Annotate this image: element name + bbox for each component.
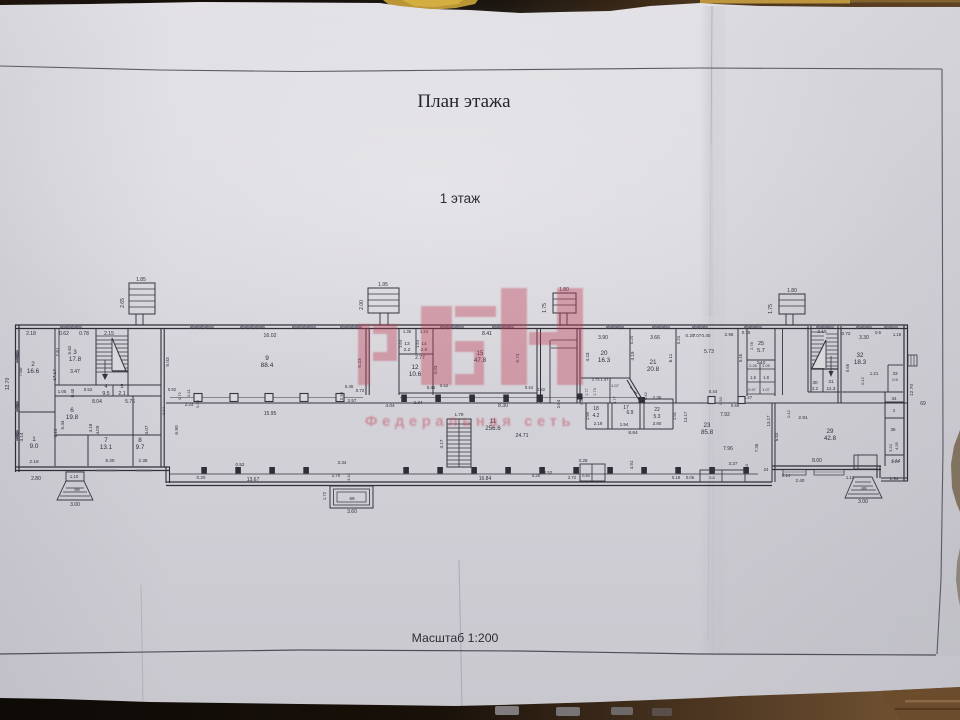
svg-text:7.60: 7.60 (18, 367, 23, 376)
svg-text:0.12: 0.12 (786, 409, 791, 418)
svg-text:7.96: 7.96 (723, 446, 733, 452)
svg-text:Федеральная сеть: Федеральная сеть (365, 414, 575, 430)
svg-text:1.10: 1.10 (70, 474, 79, 479)
svg-text:0.52: 0.52 (84, 387, 93, 392)
svg-text:13.17: 13.17 (683, 411, 688, 423)
svg-text:2.73 1.97: 2.73 1.97 (592, 377, 609, 382)
svg-text:69: 69 (74, 487, 80, 493)
svg-text:1.21: 1.21 (870, 371, 879, 376)
svg-text:3.34: 3.34 (338, 460, 347, 465)
svg-text:1.47: 1.47 (744, 395, 753, 400)
svg-text:5.03: 5.03 (165, 357, 171, 367)
svg-text:2.61: 2.61 (55, 347, 60, 356)
svg-text:5.3: 5.3 (654, 414, 661, 420)
svg-text:0.20: 0.20 (532, 473, 541, 478)
svg-text:9: 9 (265, 355, 269, 362)
svg-text:4: 4 (105, 384, 108, 390)
svg-text:1.85: 1.85 (136, 277, 146, 283)
svg-text:5.7: 5.7 (757, 348, 765, 354)
svg-text:3.20: 3.20 (888, 443, 893, 452)
svg-text:3.90: 3.90 (598, 335, 608, 341)
svg-text:21: 21 (649, 359, 657, 366)
svg-text:1.75: 1.75 (542, 303, 548, 313)
svg-text:5: 5 (121, 384, 124, 390)
svg-text:0.06: 0.06 (686, 475, 695, 480)
svg-text:1.73: 1.73 (593, 388, 597, 395)
svg-text:0.63: 0.63 (744, 463, 749, 472)
svg-text:0.62: 0.62 (59, 331, 69, 337)
svg-text:24: 24 (764, 467, 769, 472)
svg-text:1.94: 1.94 (890, 476, 899, 481)
svg-text:0.72: 0.72 (842, 331, 851, 336)
svg-text:5.66: 5.66 (845, 363, 850, 372)
svg-text:13: 13 (404, 341, 410, 347)
svg-text:1.91: 1.91 (672, 411, 677, 420)
svg-text:0.40: 0.40 (702, 333, 711, 338)
svg-text:1.90: 1.90 (585, 411, 590, 420)
svg-text:0.24: 0.24 (629, 335, 634, 344)
svg-text:2.70: 2.70 (332, 473, 341, 478)
svg-text:20.8: 20.8 (647, 366, 660, 373)
svg-text:6.90: 6.90 (174, 425, 180, 435)
svg-text:0.82: 0.82 (537, 387, 546, 392)
svg-text:3.41: 3.41 (346, 472, 351, 481)
svg-text:10.6: 10.6 (409, 371, 422, 378)
svg-text:5.73: 5.73 (704, 349, 714, 355)
svg-text:3.27: 3.27 (729, 461, 738, 466)
svg-text:2.91: 2.91 (798, 415, 808, 421)
svg-text:1.07: 1.07 (611, 383, 620, 388)
svg-text:18.3: 18.3 (854, 359, 867, 366)
svg-text:17.17: 17.17 (52, 369, 57, 381)
svg-text:2.15: 2.15 (104, 331, 114, 337)
svg-text:18: 18 (593, 406, 599, 412)
svg-text:16.6: 16.6 (27, 368, 40, 375)
svg-text:22: 22 (654, 407, 660, 413)
svg-text:1.05: 1.05 (58, 389, 67, 394)
svg-text:0.45: 0.45 (427, 385, 436, 390)
svg-text:8: 8 (138, 437, 142, 444)
svg-text:0.30: 0.30 (195, 399, 200, 408)
svg-text:1.75: 1.75 (768, 304, 774, 314)
svg-text:35: 35 (890, 427, 896, 432)
svg-text:7.92: 7.92 (720, 412, 730, 418)
svg-text:34: 34 (891, 396, 897, 401)
svg-text:4.09: 4.09 (95, 425, 100, 434)
svg-text:3.60: 3.60 (347, 509, 357, 515)
svg-text:0.97: 0.97 (748, 388, 755, 392)
svg-text:1.16: 1.16 (893, 332, 902, 337)
svg-text:2.80: 2.80 (653, 421, 662, 426)
svg-text:3.77: 3.77 (612, 395, 617, 404)
svg-text:2.38: 2.38 (139, 458, 148, 463)
svg-text:8.30: 8.30 (498, 403, 508, 409)
svg-text:30: 30 (812, 380, 818, 385)
svg-text:2.04: 2.04 (556, 399, 561, 408)
svg-text:7.07: 7.07 (693, 333, 702, 338)
svg-text:0.40: 0.40 (70, 388, 75, 397)
svg-text:1.77: 1.77 (585, 388, 589, 395)
svg-text:16.02: 16.02 (264, 333, 277, 339)
svg-text:3.30: 3.30 (859, 335, 869, 341)
svg-text:6.11: 6.11 (668, 353, 673, 362)
svg-text:2.00: 2.00 (359, 300, 365, 310)
svg-text:4.17: 4.17 (439, 439, 444, 448)
svg-text:4.07: 4.07 (144, 425, 149, 434)
svg-text:2.40: 2.40 (796, 478, 805, 483)
svg-text:2.19: 2.19 (594, 421, 603, 426)
svg-text:3.28: 3.28 (579, 458, 588, 463)
svg-text:69: 69 (861, 486, 867, 491)
svg-text:1.64: 1.64 (398, 339, 403, 348)
svg-text:2.57: 2.57 (348, 398, 357, 403)
svg-text:0.92: 0.92 (168, 387, 177, 392)
svg-text:9.0: 9.0 (30, 443, 39, 450)
svg-text:17.8: 17.8 (69, 356, 82, 363)
svg-text:0.84: 0.84 (582, 474, 589, 478)
svg-text:0.20: 0.20 (197, 475, 206, 480)
svg-text:2.18: 2.18 (26, 331, 36, 337)
svg-text:6: 6 (70, 407, 74, 414)
svg-text:2.2: 2.2 (812, 386, 818, 391)
svg-text:33: 33 (892, 371, 898, 376)
svg-text:25: 25 (758, 341, 764, 347)
svg-text:0.5: 0.5 (892, 377, 898, 382)
svg-text:15.95: 15.95 (264, 411, 277, 417)
svg-text:Масштаб 1:200: Масштаб 1:200 (412, 631, 499, 645)
svg-text:1 этаж: 1 этаж (440, 191, 480, 206)
svg-text:2.09: 2.09 (762, 364, 769, 368)
svg-text:13.17: 13.17 (766, 415, 771, 427)
svg-text:0.57: 0.57 (579, 396, 584, 405)
svg-text:1.6: 1.6 (750, 375, 756, 380)
svg-text:8.04: 8.04 (92, 399, 102, 405)
svg-text:5.20: 5.20 (106, 458, 115, 463)
svg-text:0.78: 0.78 (79, 331, 89, 337)
svg-text:85.8: 85.8 (701, 429, 714, 436)
svg-text:2.72: 2.72 (568, 475, 577, 480)
svg-text:5.46: 5.46 (738, 353, 743, 362)
svg-text:0.6: 0.6 (875, 330, 882, 335)
svg-text:0.42: 0.42 (643, 391, 648, 400)
svg-text:0.46: 0.46 (731, 403, 740, 408)
svg-text:2.65: 2.65 (120, 298, 126, 308)
svg-text:69: 69 (349, 496, 355, 501)
svg-text:29: 29 (827, 428, 834, 435)
svg-text:16.3: 16.3 (598, 357, 611, 364)
svg-text:3.66: 3.66 (650, 335, 660, 341)
svg-text:1.14: 1.14 (892, 458, 901, 463)
svg-text:1.8: 1.8 (763, 375, 769, 380)
svg-text:0.12: 0.12 (860, 376, 865, 385)
svg-text:4.14: 4.14 (19, 432, 24, 441)
svg-text:9.7: 9.7 (136, 444, 145, 451)
svg-text:1.94: 1.94 (620, 422, 629, 427)
svg-text:69: 69 (920, 401, 926, 407)
svg-text:1: 1 (32, 436, 36, 443)
svg-text:4.91: 4.91 (629, 460, 634, 469)
svg-text:4.04: 4.04 (385, 403, 395, 409)
svg-text:7: 7 (104, 437, 108, 444)
svg-text:1.10: 1.10 (846, 475, 855, 480)
svg-text:11.3: 11.3 (827, 386, 836, 392)
svg-text:3.00: 3.00 (70, 502, 80, 508)
svg-text:4.35: 4.35 (894, 441, 899, 450)
svg-text:12.70: 12.70 (5, 378, 11, 391)
svg-text:1.07: 1.07 (762, 388, 769, 392)
svg-text:0.52: 0.52 (544, 470, 553, 475)
svg-text:8.41: 8.41 (482, 331, 492, 337)
svg-text:0.72: 0.72 (177, 391, 182, 400)
svg-text:2.18: 2.18 (29, 459, 39, 465)
svg-text:0.41: 0.41 (186, 388, 191, 397)
svg-text:19.8: 19.8 (66, 414, 79, 421)
svg-text:0.52: 0.52 (236, 462, 245, 467)
svg-text:88.4: 88.4 (261, 362, 274, 369)
svg-text:13.1: 13.1 (100, 444, 113, 451)
svg-text:23: 23 (704, 422, 711, 429)
svg-text:6.9: 6.9 (627, 410, 634, 416)
svg-text:1.35: 1.35 (403, 329, 412, 334)
svg-text:0.45: 0.45 (345, 384, 354, 389)
svg-text:0.50: 0.50 (718, 396, 723, 405)
svg-text:3.00: 3.00 (858, 499, 868, 505)
svg-text:5.43: 5.43 (774, 432, 779, 441)
svg-text:20: 20 (600, 350, 608, 357)
svg-text:2.36: 2.36 (653, 395, 662, 400)
svg-text:2.15: 2.15 (817, 329, 827, 335)
svg-text:3.47: 3.47 (70, 369, 80, 375)
svg-text:0.14: 0.14 (161, 406, 166, 415)
svg-text:24.71: 24.71 (516, 433, 529, 439)
svg-text:32: 32 (856, 352, 864, 359)
svg-text:0.24: 0.24 (676, 335, 681, 344)
svg-text:42.8: 42.8 (824, 435, 837, 442)
svg-text:5.44: 5.44 (60, 420, 65, 429)
svg-text:5.76: 5.76 (125, 399, 135, 405)
svg-text:1.54: 1.54 (415, 339, 420, 348)
svg-text:7.35: 7.35 (754, 443, 759, 452)
svg-text:4.19: 4.19 (630, 351, 635, 360)
svg-text:4.23: 4.23 (585, 352, 590, 361)
svg-text:31: 31 (828, 379, 834, 385)
svg-text:1.95: 1.95 (378, 282, 388, 288)
svg-text:16.84: 16.84 (479, 476, 492, 482)
svg-text:4.18: 4.18 (88, 423, 93, 432)
svg-text:12.70: 12.70 (909, 384, 915, 396)
svg-text:0.44: 0.44 (709, 389, 718, 394)
svg-text:2.80: 2.80 (31, 476, 41, 482)
svg-text:0.50: 0.50 (339, 391, 344, 400)
svg-text:2.78: 2.78 (749, 341, 754, 350)
svg-text:2: 2 (31, 361, 35, 368)
svg-text:2.2: 2.2 (404, 347, 411, 353)
svg-text:12: 12 (411, 364, 419, 371)
svg-text:4.2: 4.2 (593, 413, 600, 419)
svg-text:0.19: 0.19 (672, 475, 681, 480)
svg-text:0.72: 0.72 (356, 388, 365, 393)
svg-text:13.67: 13.67 (247, 477, 260, 483)
svg-text:2.26: 2.26 (749, 364, 756, 368)
svg-text:0.75: 0.75 (742, 330, 751, 335)
svg-text:5.62: 5.62 (67, 345, 72, 354)
svg-text:0.13: 0.13 (53, 428, 58, 437)
svg-text:0.44: 0.44 (525, 385, 534, 390)
svg-text:5.8: 5.8 (709, 475, 715, 480)
svg-text:2.96: 2.96 (725, 332, 734, 337)
svg-text:1.80: 1.80 (787, 288, 797, 294)
svg-text:8.64: 8.64 (628, 430, 638, 436)
svg-text:3: 3 (73, 349, 77, 356)
svg-text:План этажа: План этажа (417, 91, 511, 112)
svg-text:1.72: 1.72 (322, 491, 327, 500)
svg-text:8.00: 8.00 (812, 458, 822, 464)
svg-text:0.14: 0.14 (782, 473, 791, 478)
